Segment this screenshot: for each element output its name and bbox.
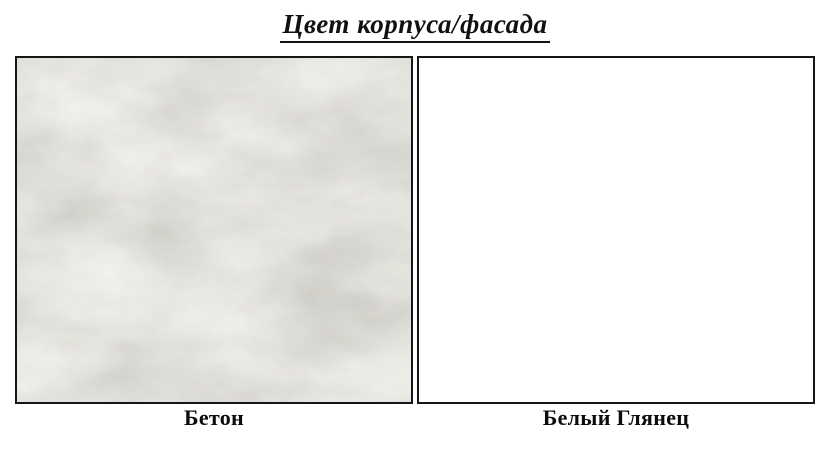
page-title-text: Цвет корпуса/фасада bbox=[280, 8, 549, 43]
swatch-option-concrete: Бетон bbox=[15, 56, 413, 431]
color-swatch-concrete[interactable] bbox=[15, 56, 413, 404]
swatch-option-white-gloss: Белый Глянец bbox=[417, 56, 815, 431]
swatch-label-white-gloss: Белый Глянец bbox=[417, 405, 815, 431]
swatch-row: Бетон Белый Глянец bbox=[15, 56, 815, 431]
swatch-label-concrete: Бетон bbox=[15, 405, 413, 431]
page-title: Цвет корпуса/фасада bbox=[0, 8, 830, 43]
concrete-blotch-layer bbox=[17, 58, 411, 402]
concrete-texture-image bbox=[17, 58, 411, 402]
color-swatch-white-gloss[interactable] bbox=[417, 56, 815, 404]
